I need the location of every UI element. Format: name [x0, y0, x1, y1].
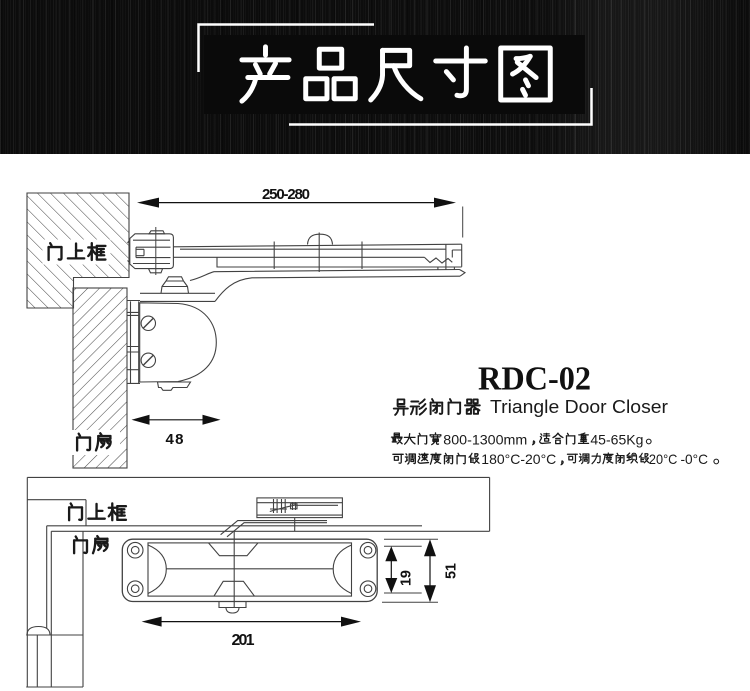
svg-text:48: 48 — [166, 431, 184, 448]
svg-text:201: 201 — [232, 632, 255, 649]
svg-text:250-280: 250-280 — [262, 186, 310, 203]
svg-text:45-65Kg: 45-65Kg — [590, 433, 643, 448]
svg-text:19: 19 — [399, 570, 415, 586]
svg-text:RDC-02: RDC-02 — [478, 361, 591, 398]
svg-text:180°C-20°C: 180°C-20°C — [481, 452, 556, 467]
svg-text:-0°C: -0°C — [681, 452, 709, 467]
svg-text:800-1300mm: 800-1300mm — [443, 433, 527, 448]
svg-text:51: 51 — [444, 563, 460, 579]
svg-text:Triangle Door Closer: Triangle Door Closer — [490, 396, 668, 417]
svg-text:20°C: 20°C — [649, 452, 678, 467]
